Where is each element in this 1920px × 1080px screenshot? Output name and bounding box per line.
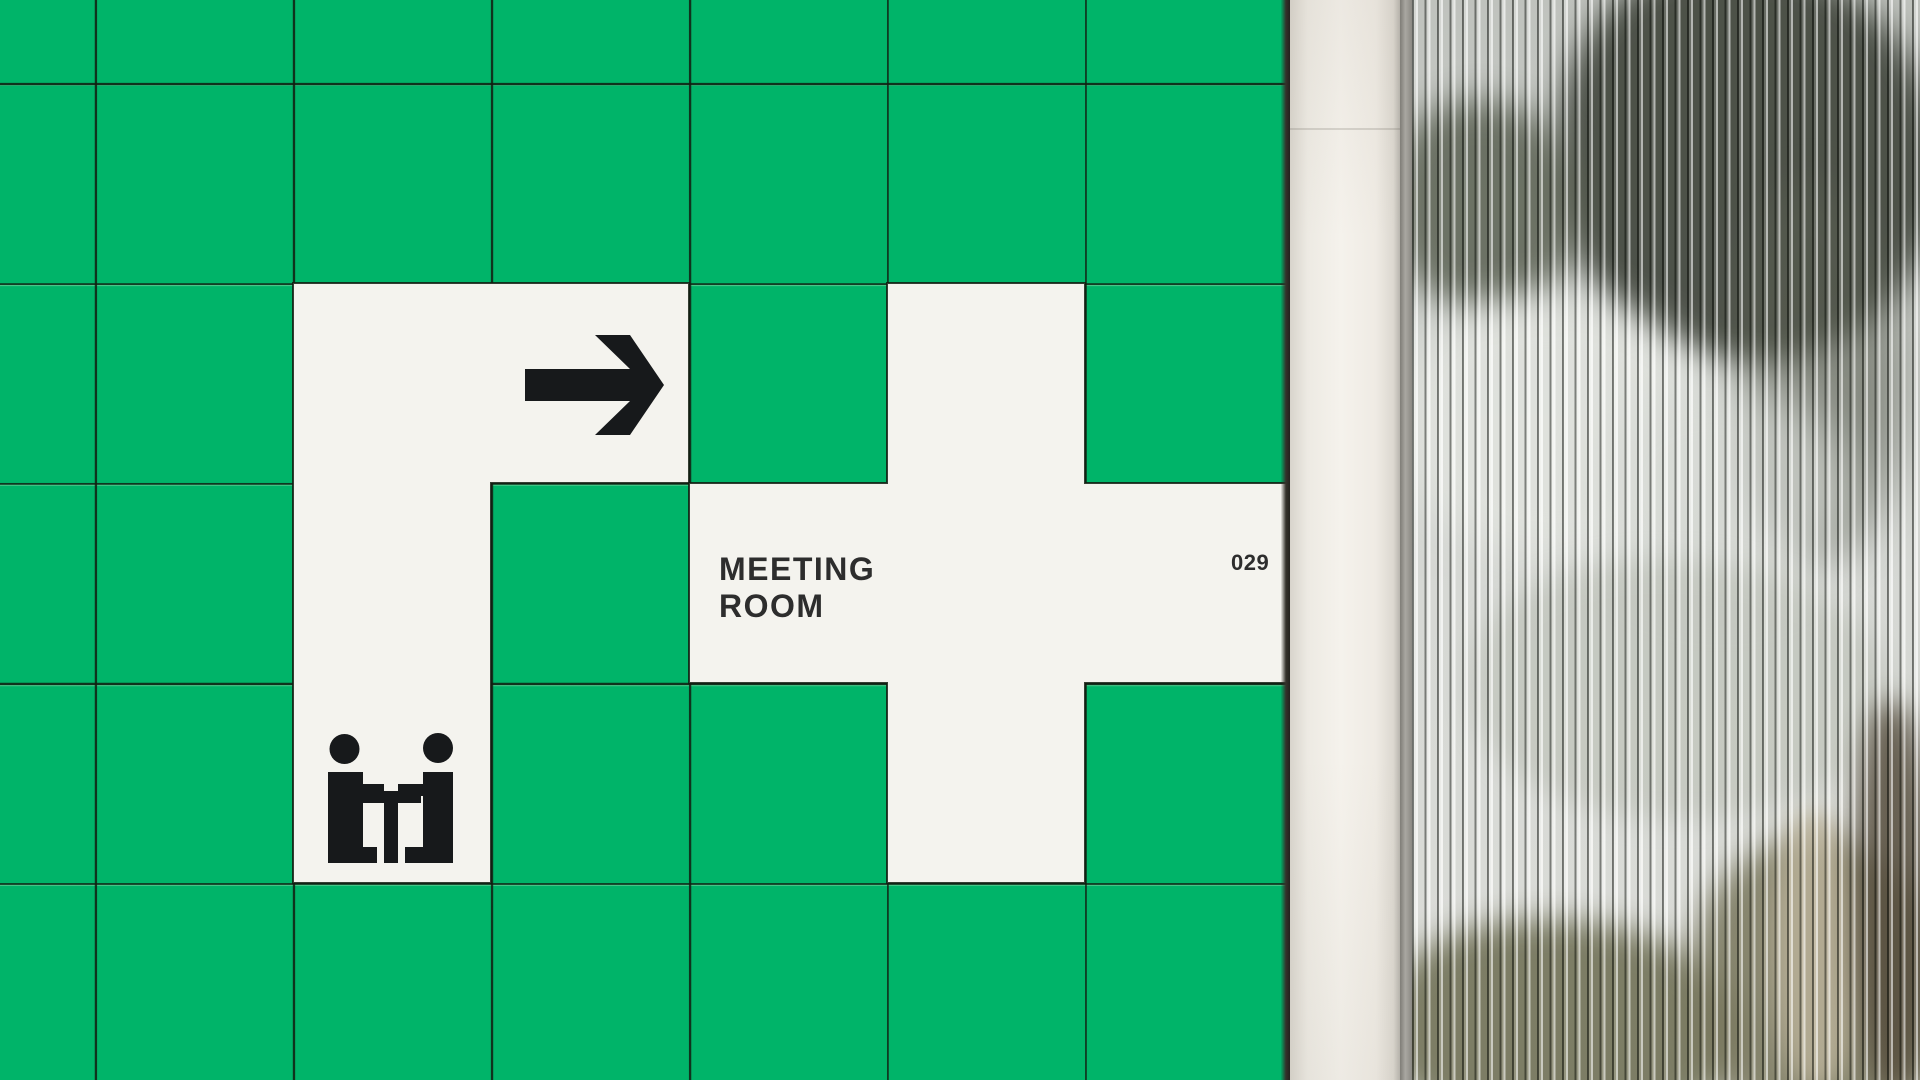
room-name-label: MEETING ROOM xyxy=(719,551,875,625)
trim-panel xyxy=(1290,0,1400,1080)
white-tile-cutouts xyxy=(0,0,1288,1080)
glass-frame-edge xyxy=(1400,0,1412,1080)
room-number-badge: 029 xyxy=(1231,552,1269,574)
signage-wall-scene: MEETING ROOM 029 xyxy=(0,0,1920,1080)
meeting-table-icon xyxy=(320,730,460,870)
fluted-glass-panel xyxy=(1412,0,1920,1080)
arrow-right-icon xyxy=(510,320,680,450)
glass-flutes-texture xyxy=(1412,0,1920,1080)
room-name-line2: ROOM xyxy=(719,588,875,625)
room-name-line1: MEETING xyxy=(719,551,875,588)
trim-seam-line xyxy=(1290,128,1400,130)
wall-edge-shadow xyxy=(1281,0,1290,1080)
trim-shading xyxy=(1290,0,1400,1080)
green-tile-wall: MEETING ROOM 029 xyxy=(0,0,1288,1080)
